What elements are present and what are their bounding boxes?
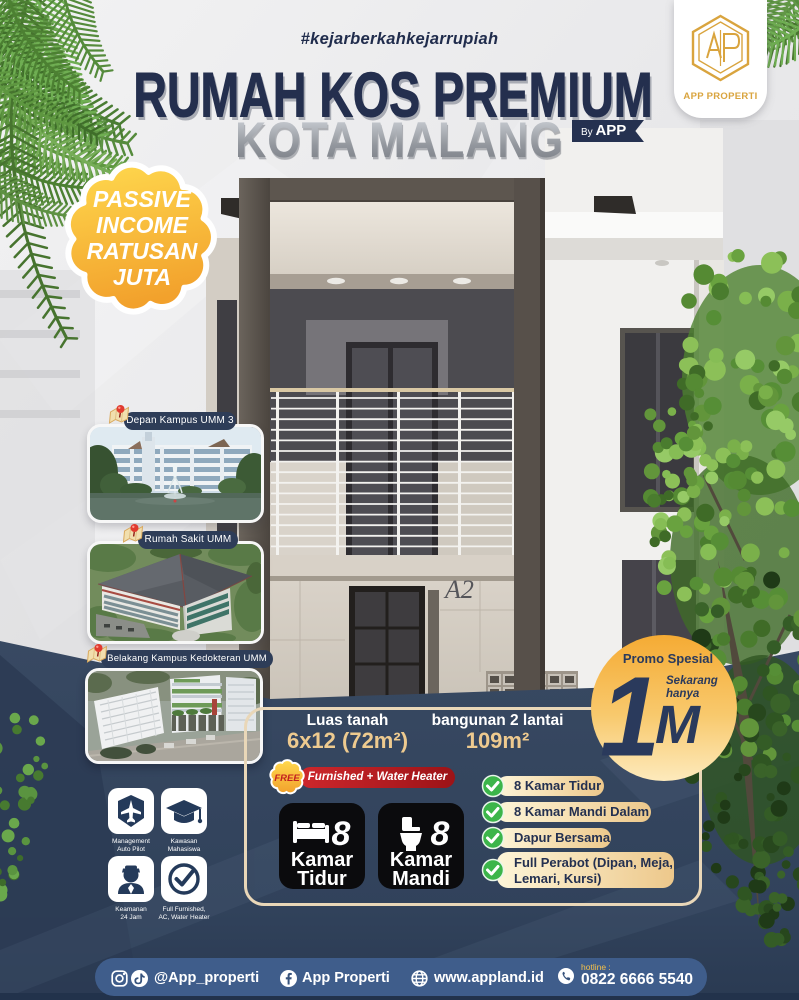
svg-text:M: M — [655, 695, 701, 755]
svg-text:Sekarang: Sekarang — [666, 675, 718, 687]
svg-text:Mandi: Mandi — [392, 868, 450, 889]
svg-text:Tidur: Tidur — [297, 868, 347, 889]
svg-text:FREE: FREE — [274, 773, 300, 784]
svg-text:1: 1 — [600, 654, 655, 780]
svg-text:PASSIVE: PASSIVE — [93, 186, 192, 212]
svg-text:RATUSAN: RATUSAN — [87, 238, 198, 264]
svg-text:JUTA: JUTA — [113, 264, 171, 290]
svg-text:INCOME: INCOME — [96, 212, 189, 238]
svg-text:8: 8 — [332, 815, 351, 853]
svg-text:APP PROPERTI: APP PROPERTI — [683, 91, 757, 102]
svg-text:8: 8 — [431, 815, 450, 853]
